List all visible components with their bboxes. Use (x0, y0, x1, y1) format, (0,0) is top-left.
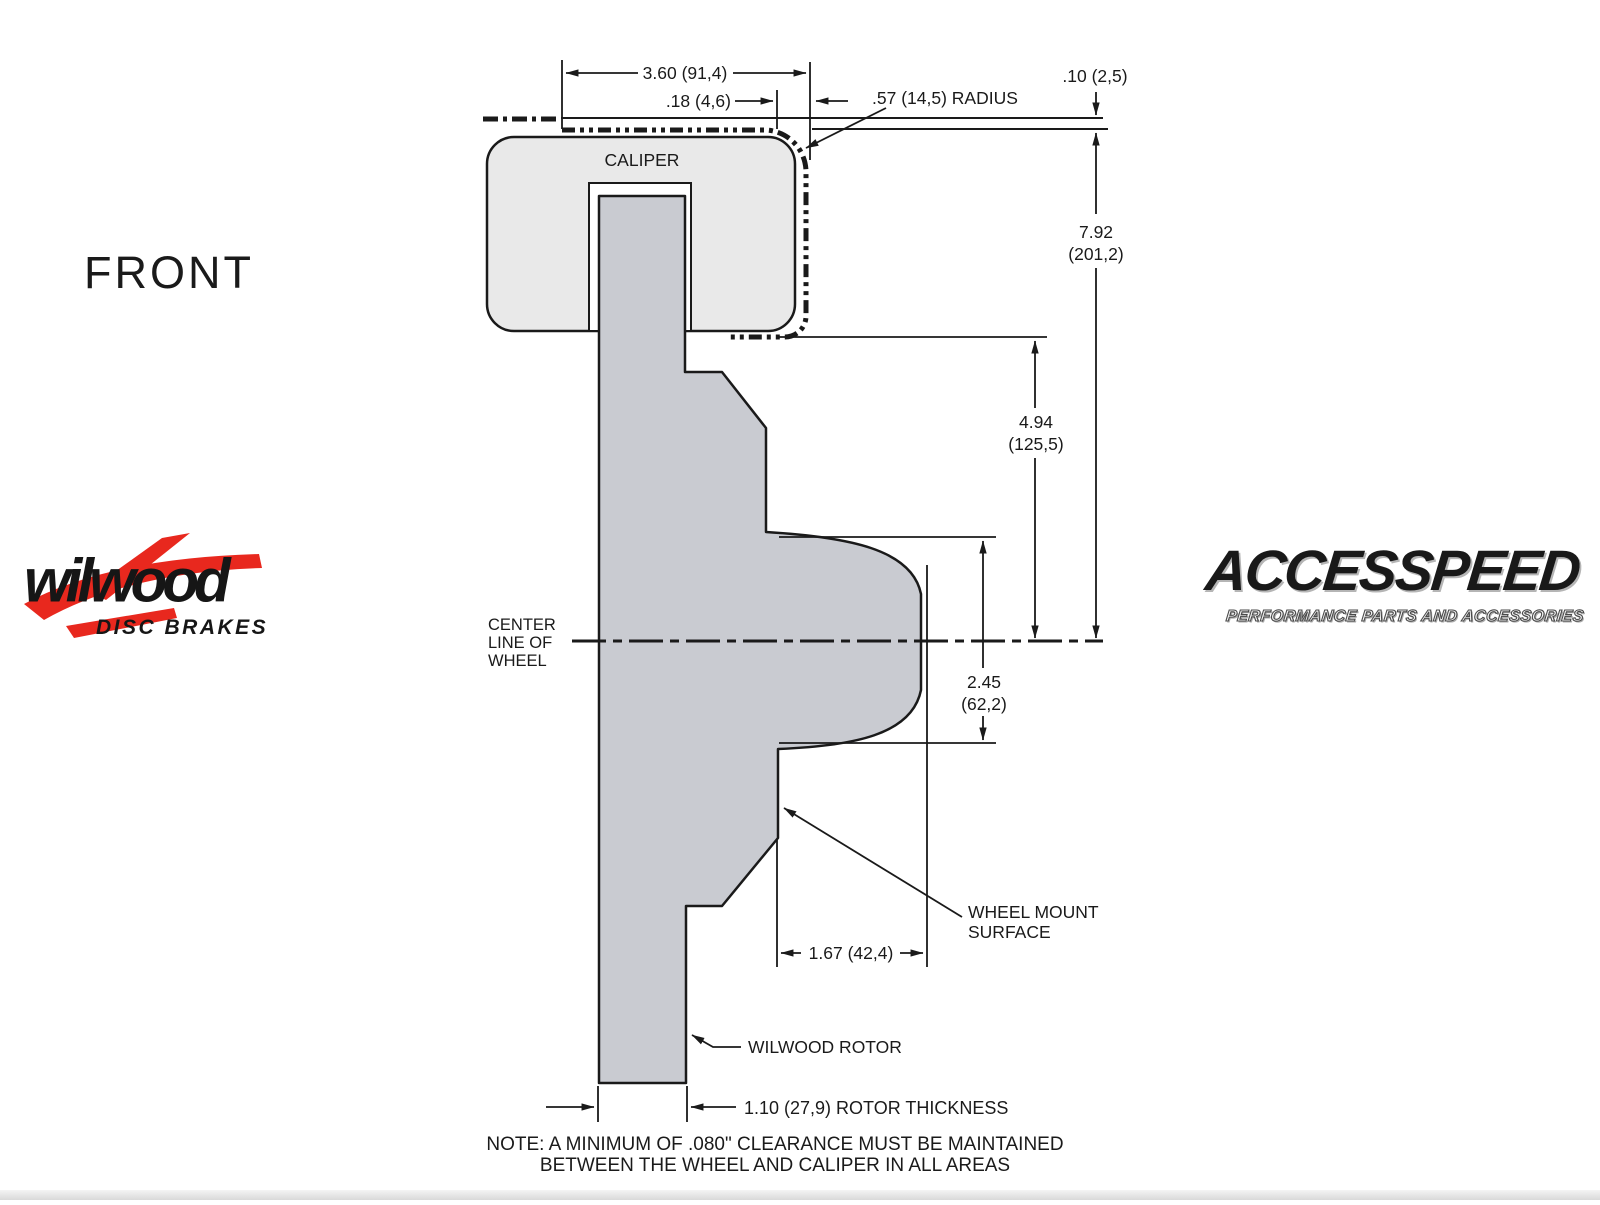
centerline-label-line3: WHEEL (488, 652, 547, 670)
caliper-label: CALIPER (605, 150, 680, 170)
centerline-label-line2: LINE OF (488, 634, 552, 652)
note-line1: NOTE: A MINIMUM OF .080" CLEARANCE MUST … (486, 1134, 1063, 1155)
dim-radius-text: .57 (14,5) RADIUS (872, 88, 1018, 108)
dim-494-in-text: 4.94 (1019, 412, 1053, 432)
dim-792-mm-text: (201,2) (1068, 244, 1123, 264)
centerline-label: CENTER LINE OF WHEEL (488, 616, 556, 670)
dim-thickness-text: 1.10 (27,9) ROTOR THICKNESS (744, 1098, 1008, 1118)
dim-494-mm-text: (125,5) (1008, 434, 1063, 454)
wheel-mount-label-line1: WHEEL MOUNT (968, 902, 1099, 922)
dim-010-text: .10 (2,5) (1062, 66, 1127, 86)
dim-245-in-text: 2.45 (967, 672, 1001, 692)
wilwood-logo-tagline: DISC BRAKES (96, 616, 268, 640)
centerline-label-line1: CENTER (488, 616, 556, 634)
wheel-mount-label-line2: SURFACE (968, 922, 1051, 942)
wilwood-logo-text: wilwood (24, 545, 226, 615)
dim-245-mm-text: (62,2) (961, 694, 1007, 714)
dim-167-text: 1.67 (42,4) (809, 943, 894, 963)
rotor-label: WILWOOD ROTOR (748, 1037, 902, 1057)
dim-018-text: .18 (4,6) (666, 91, 731, 111)
bottom-edge-strip (0, 1190, 1600, 1200)
leader-wheel-mount (784, 808, 962, 917)
dim-360-text: 3.60 (91,4) (643, 63, 728, 83)
view-label: FRONT (84, 247, 254, 298)
dim-792-in-text: 7.92 (1079, 222, 1113, 242)
wilwood-logo: wilwood DISC BRAKES (14, 528, 324, 658)
leader-rotor (692, 1035, 741, 1047)
accesspeed-logo-text: ACCESSPEED (1203, 538, 1583, 604)
note-line2: BETWEEN THE WHEEL AND CALIPER IN ALL ARE… (540, 1155, 1010, 1176)
accesspeed-logo-tagline: PERFORMANCE PARTS AND ACCESSORIES (1225, 608, 1585, 626)
accesspeed-logo: ACCESSPEED PERFORMANCE PARTS AND ACCESSO… (1202, 536, 1597, 646)
